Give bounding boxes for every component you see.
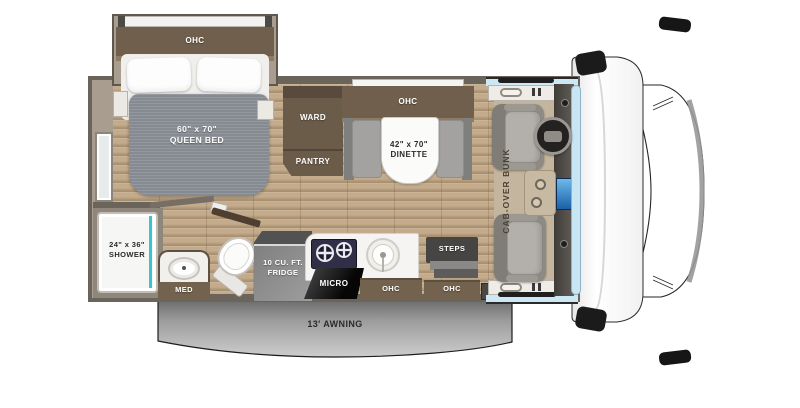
truck-cab-exterior <box>565 16 720 366</box>
awning-label: 13' AWNING <box>270 319 400 331</box>
slideout-window-strip <box>118 16 272 27</box>
rv-floorplan: 13' AWNING OHC <box>0 0 800 408</box>
far-mirror-bottom <box>658 349 691 366</box>
bedroom-ohc-label: OHC <box>116 36 274 46</box>
dinette-ohc-label: OHC <box>342 97 474 107</box>
dash-knob <box>561 99 569 107</box>
micro-label: MICRO <box>306 279 362 289</box>
entry-ohc-label: OHC <box>424 284 480 294</box>
med-label: MED <box>158 285 210 295</box>
lav-drain-icon <box>182 266 186 270</box>
driver-door-hinge <box>532 88 535 96</box>
dash-knob <box>560 240 568 248</box>
ward-label: WARD <box>283 113 343 123</box>
steering-wheel-hub <box>544 131 562 142</box>
fridge-label: 10 CU. FT. FRIDGE <box>254 258 312 278</box>
pillow-left <box>126 57 191 93</box>
driver-door-handle <box>500 88 522 97</box>
windshield <box>571 85 581 295</box>
fridge-top-edge <box>254 231 312 246</box>
awning-shape <box>150 300 520 364</box>
driver-door-seal <box>498 78 554 83</box>
wardrobe-divider <box>283 149 343 151</box>
passenger-door-hinge <box>532 283 535 291</box>
cab-over-bunk-label: CAB-OVER BUNK <box>501 146 523 236</box>
galley-ohc-label: OHC <box>360 284 422 294</box>
wardrobe-top-edge <box>283 86 343 98</box>
passenger-door-seal <box>498 292 556 297</box>
cupholder-icon <box>531 197 542 208</box>
bedroom-window <box>95 132 113 202</box>
dinette-label: 42" x 70" DINETTE <box>372 140 446 161</box>
nightstand-left <box>113 91 128 117</box>
faucet-icon <box>382 258 384 272</box>
entry-step-low <box>434 269 478 278</box>
cab-roof <box>572 57 643 322</box>
far-mirror-top <box>658 16 691 33</box>
driver-door-hinge <box>538 88 541 96</box>
cupholder-icon <box>535 179 546 190</box>
pantry-label: PANTRY <box>283 157 343 167</box>
center-console <box>524 170 556 216</box>
cooktop-icon <box>311 239 357 269</box>
passenger-door-hinge <box>538 283 541 291</box>
passenger-door-handle <box>500 283 522 292</box>
shower-label: 24" x 36" SHOWER <box>97 240 157 260</box>
queen-bed-label: 60" x 70" QUEEN BED <box>130 124 264 146</box>
nightstand-right <box>257 100 274 120</box>
pillow-right <box>196 57 261 93</box>
steps-label: STEPS <box>426 244 478 254</box>
